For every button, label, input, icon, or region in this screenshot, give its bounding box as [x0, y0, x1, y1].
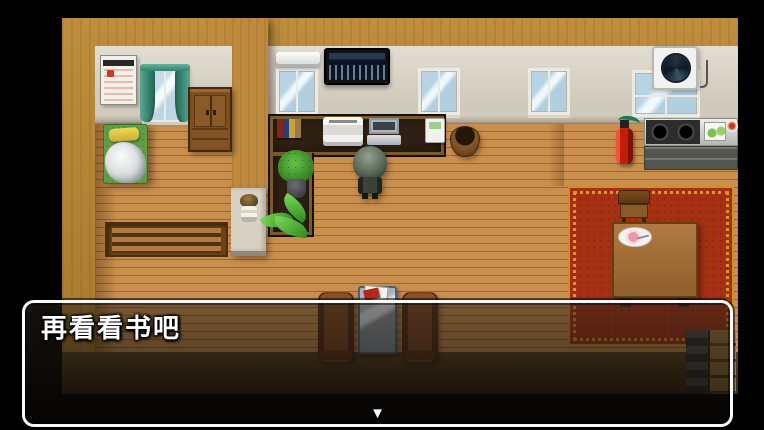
kitchen-counter: [644, 114, 738, 172]
books-icon: [277, 119, 303, 140]
character-hair: [353, 146, 387, 180]
wardrobe-drawers: [192, 128, 228, 148]
tv-icon: [324, 48, 390, 85]
wall-window: [418, 68, 460, 115]
floor-plant-icon: [260, 198, 312, 242]
wardrobe-doors: [194, 95, 226, 127]
desk-plant-icon: [278, 150, 314, 182]
game-screen[interactable]: 再看看书吧 ▼: [0, 0, 764, 430]
tv-screen: [329, 53, 385, 80]
laptop-screen: [369, 118, 399, 134]
telephone-icon: [425, 118, 445, 143]
dinner-plate-icon: [618, 227, 652, 247]
fire-extinguisher-handle: [620, 120, 629, 128]
counter-drawers: [644, 146, 738, 170]
divider-wall: [232, 18, 268, 190]
printer-icon: [323, 117, 363, 146]
chair-seat: [620, 204, 648, 218]
calendar-icon: [100, 55, 137, 105]
fan-blade: [661, 53, 691, 83]
fire-extinguisher-icon: [616, 128, 633, 164]
blanket-icon: [105, 142, 146, 183]
pillow-icon: [109, 127, 140, 142]
character-body: [358, 177, 382, 194]
cutting-board-icon: [704, 122, 726, 141]
floor-shadow: [548, 124, 564, 186]
continue-arrow-icon[interactable]: ▼: [370, 406, 385, 421]
chair-icon: [618, 190, 650, 204]
fan-cord: [700, 60, 708, 88]
dialogue-window[interactable]: 再看看书吧 ▼: [22, 300, 733, 427]
air-conditioner-icon: [276, 52, 320, 67]
laptop-icon: [367, 118, 401, 146]
calendar-header: [103, 60, 134, 66]
ventilation-fan-icon: [652, 46, 698, 90]
curtain-valance: [140, 64, 190, 71]
player-character: [352, 146, 388, 200]
calendar-date-mark: [107, 70, 114, 77]
curtain-icon: [140, 66, 155, 122]
bench-slats: [112, 228, 221, 253]
lamp-base: [241, 206, 257, 222]
wardrobe-icon: [188, 87, 232, 152]
food-dish-icon: [726, 120, 738, 132]
wall-window: [528, 68, 570, 115]
wooden-bench: [105, 222, 228, 257]
stove-icon: [646, 120, 700, 144]
wall-window: [276, 68, 318, 115]
laptop-keyboard: [367, 135, 401, 145]
character-feet: [362, 193, 368, 199]
dialogue-text: 再看看书吧: [41, 308, 181, 345]
